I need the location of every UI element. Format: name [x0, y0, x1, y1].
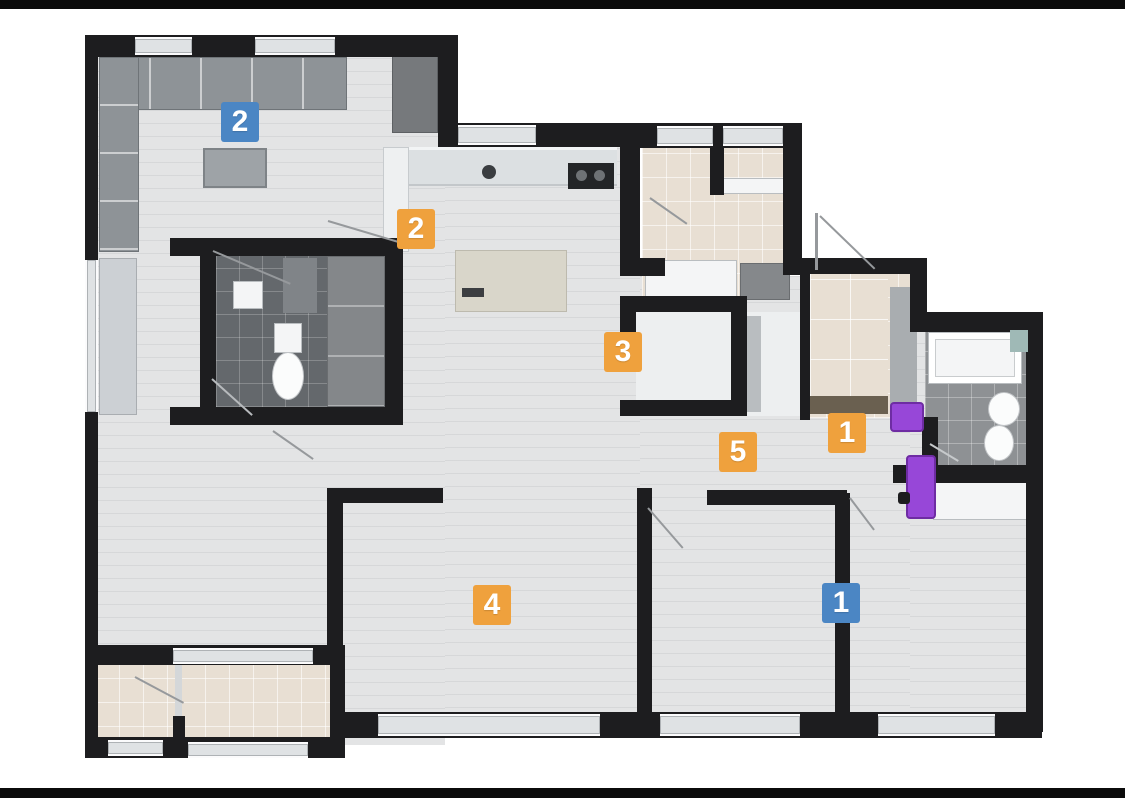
shower-room-panel	[747, 316, 761, 412]
wall-hall-left	[327, 488, 343, 660]
wall-midbedroom-top	[707, 490, 847, 505]
entry-closet	[810, 274, 888, 400]
badge-corridor: 5	[719, 432, 757, 472]
wall-entry-step	[910, 274, 927, 316]
window-laundry-1	[657, 126, 713, 146]
badge-storage-room: 3	[604, 332, 642, 372]
wall-bathroom-left	[200, 238, 216, 425]
tall-cabinet	[392, 46, 438, 133]
kitchen-island	[455, 250, 567, 312]
balcony-divider-stub	[173, 716, 185, 738]
wall-top-entry	[783, 258, 927, 274]
entry-closet-base	[810, 396, 888, 414]
floor-plan: 2 2 3 1 5 4 1	[0, 0, 1125, 798]
wall-kitchen-laundry	[620, 147, 640, 276]
wall-storage-left-stub	[620, 296, 636, 336]
fixture-knob	[898, 492, 910, 504]
sofa-left-section	[99, 57, 139, 252]
highlighted-fixture-upper	[890, 402, 924, 432]
wall-room4-top	[327, 488, 443, 503]
wall-laundry-jog	[620, 258, 665, 276]
bathroom-sink	[233, 281, 263, 309]
kitchen-sink	[482, 165, 496, 179]
window-balcony-right	[188, 742, 308, 758]
window-rightbedroom	[878, 714, 995, 736]
badge-bedroom: 1	[822, 583, 860, 623]
badge-living-room: 2	[221, 102, 259, 142]
cooktop	[568, 163, 614, 189]
cooktop-burner	[576, 170, 587, 181]
cooktop-burner	[594, 170, 605, 181]
bath-plant	[1010, 330, 1028, 352]
laundry-appliance-top	[718, 178, 788, 194]
door-leaf-entry	[815, 213, 818, 270]
floor-kitchen-area	[445, 135, 640, 725]
wall-entry-left	[800, 274, 810, 420]
window-living-2	[255, 37, 335, 55]
badge-entry-hall: 1	[828, 413, 866, 453]
coffee-table	[203, 148, 267, 188]
window-room4	[378, 714, 600, 736]
wall-bathroom-right	[385, 238, 403, 425]
shower-cabinet	[283, 258, 317, 313]
floor-plan-image: 2 2 3 1 5 4 1	[0, 0, 1125, 798]
floor-storage-room	[636, 312, 731, 404]
letterbox-bottom	[0, 788, 1125, 798]
badge-main-room: 4	[473, 585, 511, 625]
window-midbedroom	[660, 714, 800, 736]
window-laundry-2	[723, 126, 783, 146]
window-kitchen	[458, 125, 536, 145]
wall-right-laundry	[783, 123, 802, 275]
letterbox-top	[0, 0, 1125, 9]
window-left-wall	[85, 260, 98, 412]
wall-right-outer	[1026, 312, 1043, 732]
wall-top-bathroom-right	[910, 312, 1042, 332]
wall-storage-bottom	[620, 400, 735, 416]
window-living-1	[135, 37, 192, 55]
badge-kitchen: 2	[397, 209, 435, 249]
wall-room4-right	[637, 488, 652, 712]
toilet	[272, 352, 304, 400]
island-appliance	[462, 288, 484, 297]
wall-storage-top	[620, 296, 747, 312]
toilet-right-bath	[988, 392, 1020, 426]
bedroom-dresser	[933, 482, 1027, 520]
bathtub	[928, 332, 1022, 384]
wall-storage-right	[731, 296, 747, 416]
highlighted-fixture-lower	[906, 455, 936, 519]
toilet-cistern	[274, 323, 302, 353]
bidet-right-bath	[984, 425, 1014, 461]
wall-bathroom-bottom	[170, 407, 403, 425]
balcony-sliding-door	[173, 648, 313, 664]
built-in-wardrobe-left	[99, 258, 137, 415]
window-balcony-left	[108, 740, 163, 756]
bathroom-wardrobe	[327, 256, 385, 407]
